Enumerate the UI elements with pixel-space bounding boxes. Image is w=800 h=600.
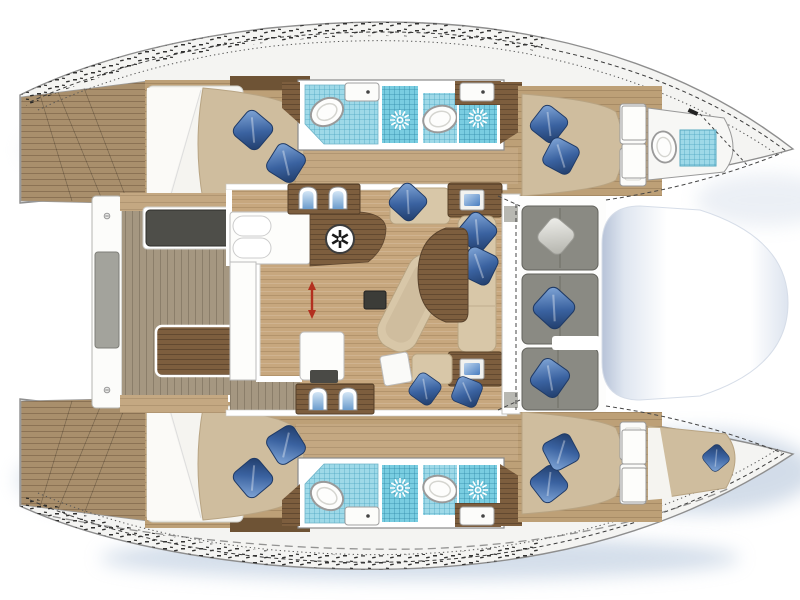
side-deck bbox=[120, 395, 228, 413]
coffee-table bbox=[364, 291, 386, 309]
bench-gap bbox=[552, 336, 600, 350]
galley-counter bbox=[230, 262, 256, 380]
companionway-steps-icon bbox=[339, 388, 357, 410]
dark-sink bbox=[310, 370, 338, 383]
locker-door bbox=[622, 106, 646, 140]
starboard-companionway bbox=[296, 384, 374, 414]
companionway-steps-icon bbox=[299, 187, 317, 209]
galley-fixture bbox=[233, 238, 271, 258]
catamaran-layout-plan bbox=[0, 0, 800, 600]
screw-icon bbox=[104, 387, 110, 393]
saloon-wall bbox=[256, 376, 302, 382]
instrument-screen-icon bbox=[460, 190, 484, 210]
shower-pan bbox=[680, 130, 716, 166]
fridge-snowflake-icon bbox=[326, 225, 354, 253]
aft-beam-seat-pad bbox=[95, 252, 119, 348]
saloon bbox=[226, 181, 520, 416]
locker-door bbox=[622, 144, 646, 178]
floor-plan-canvas bbox=[0, 0, 800, 600]
companionway-steps-icon bbox=[329, 187, 347, 209]
galley-fixture bbox=[233, 216, 271, 236]
white-panel bbox=[380, 352, 413, 386]
charcoal-bench bbox=[146, 210, 232, 246]
screw-icon bbox=[104, 213, 110, 219]
port-companionway bbox=[288, 184, 360, 214]
starboard-hull-interior bbox=[145, 402, 662, 532]
companionway-steps-icon bbox=[309, 388, 327, 410]
instrument-screen-icon bbox=[460, 359, 484, 379]
mast-beam bbox=[502, 194, 520, 414]
